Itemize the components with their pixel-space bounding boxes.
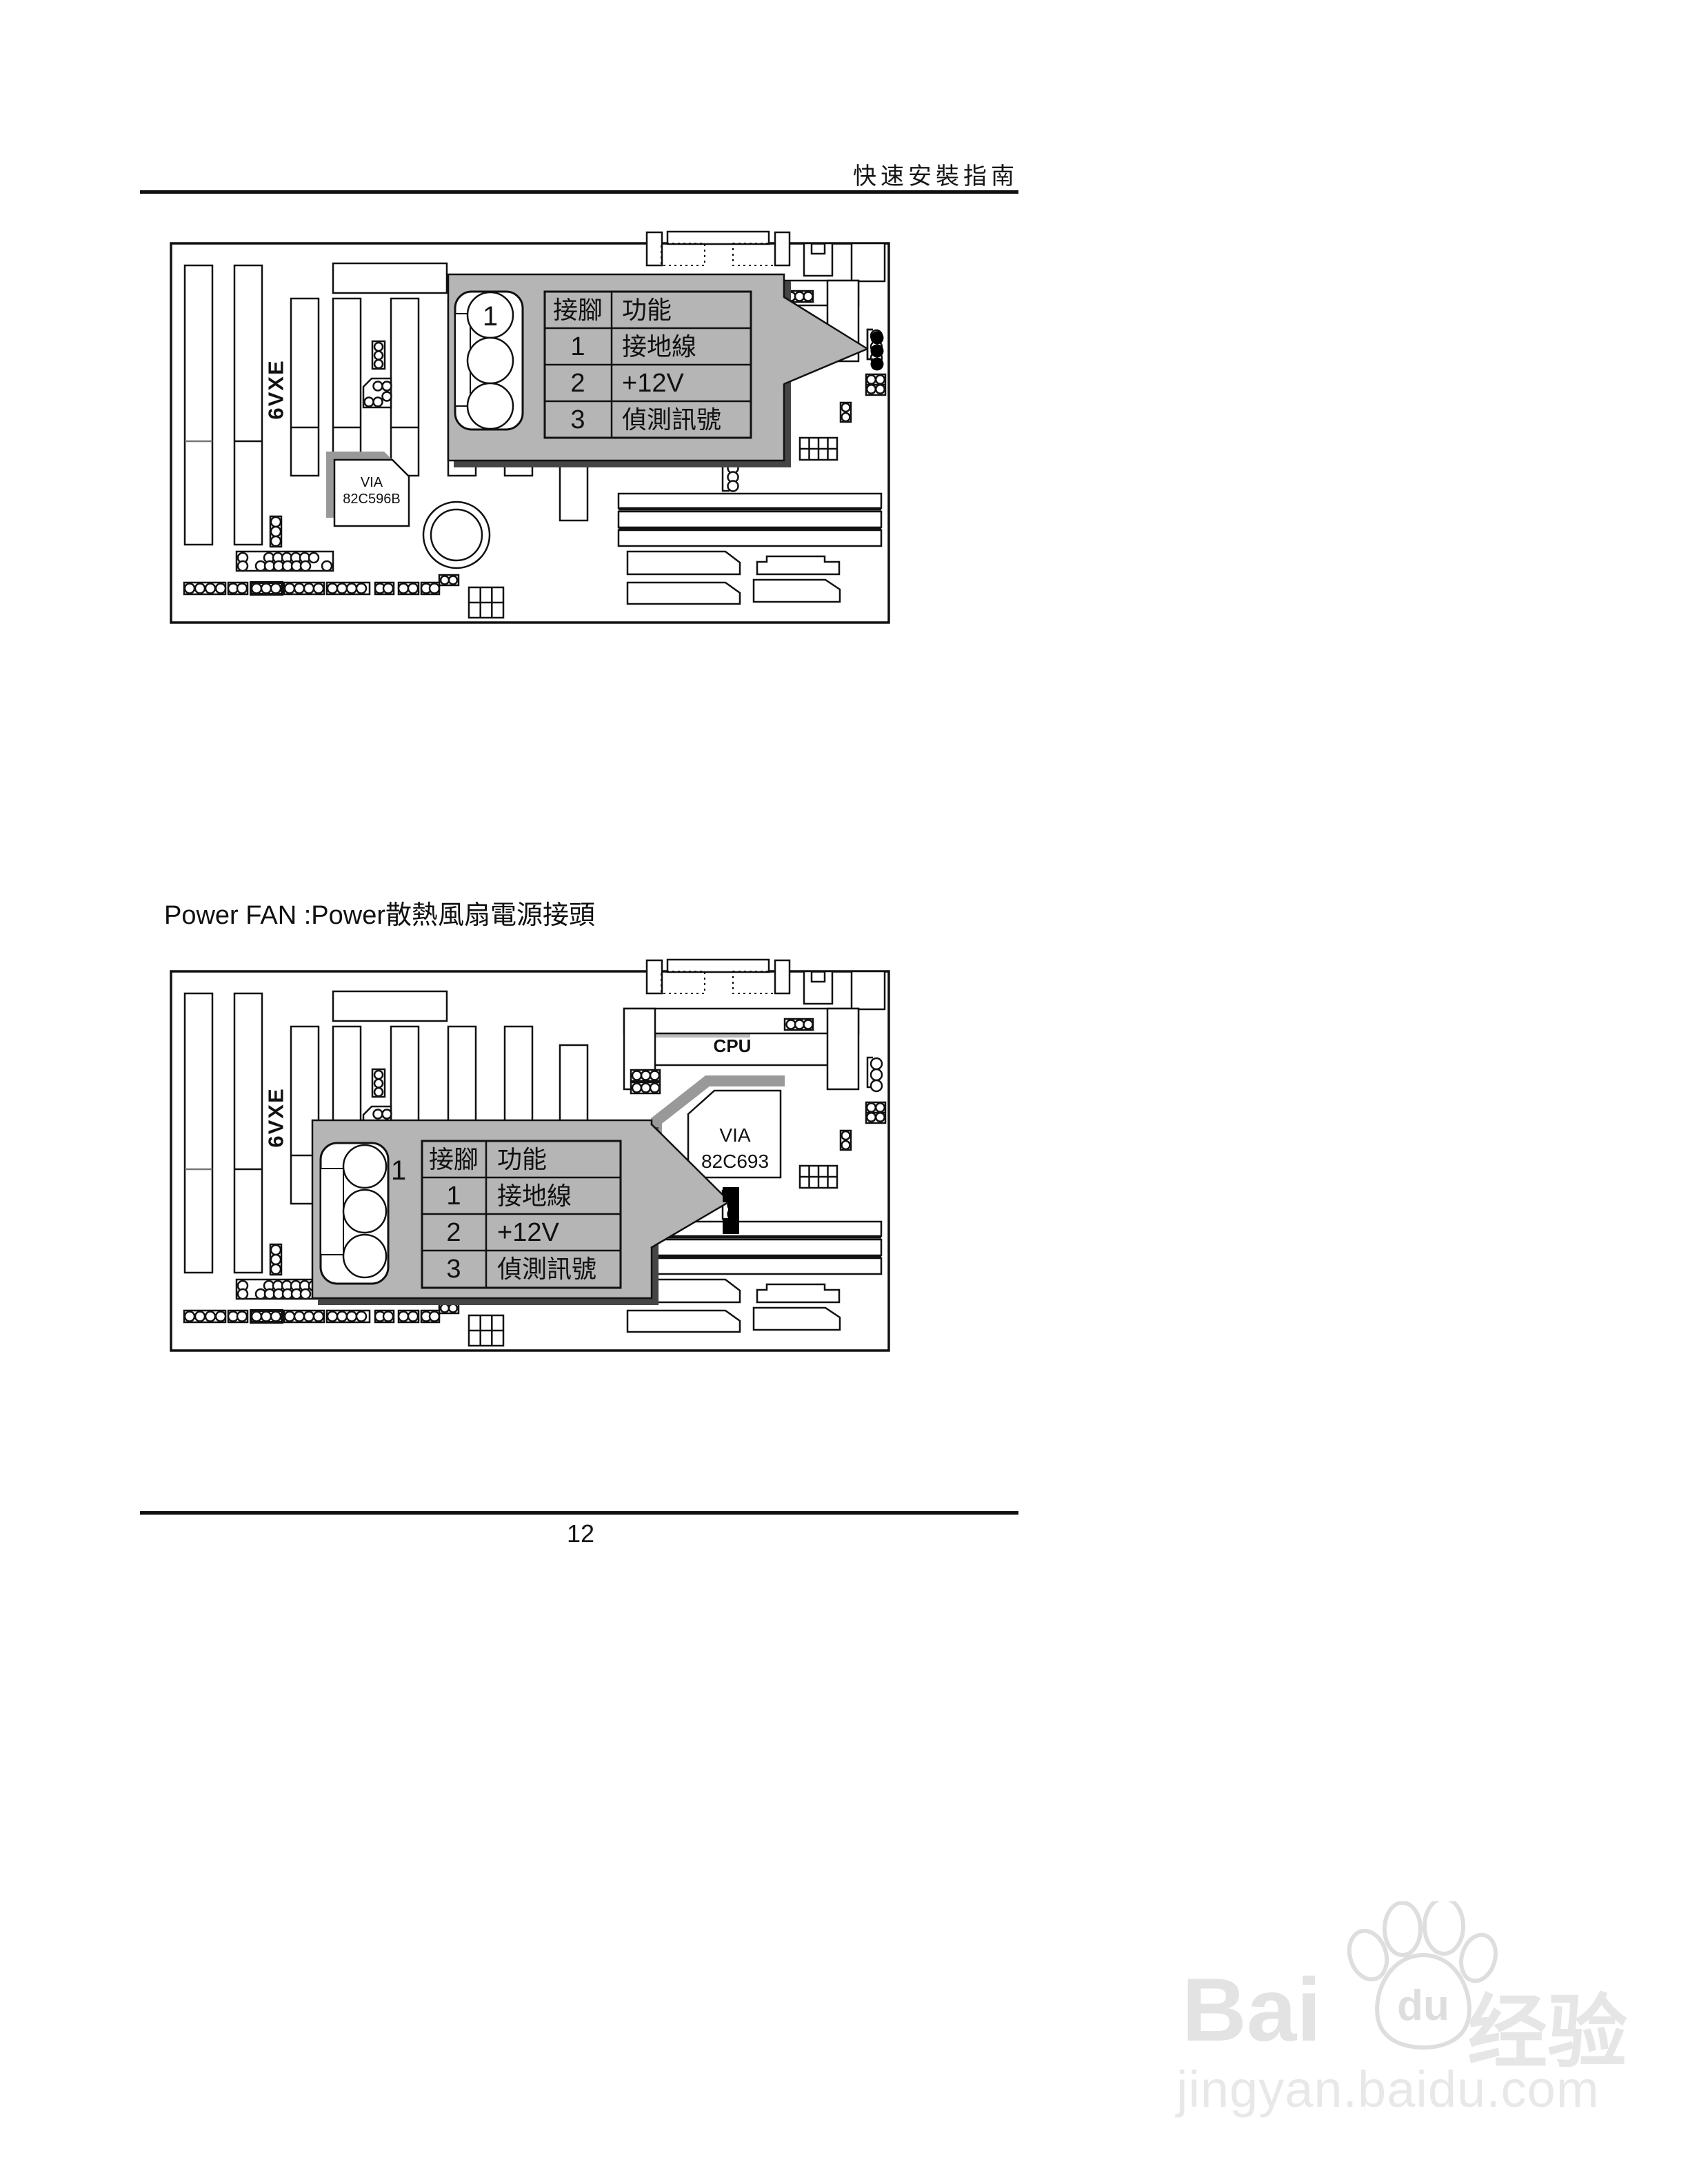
table1-r2-func: +12V xyxy=(622,369,684,398)
watermark-du-text: du xyxy=(1397,1982,1449,2030)
table1-r3-pin: 3 xyxy=(570,405,585,434)
table2-r2-func: +12V xyxy=(497,1218,559,1247)
table1-r1-pin: 1 xyxy=(570,332,585,361)
table2-header-func: 功能 xyxy=(497,1146,547,1173)
table1-r2-pin: 2 xyxy=(570,369,585,398)
table2-r3-pin: 3 xyxy=(446,1255,461,1284)
pin1-marker-2: 1 xyxy=(391,1155,406,1186)
table1-r3-func: 偵測訊號 xyxy=(622,406,721,434)
table2-header-pin: 接腳 xyxy=(429,1146,479,1173)
fan-connector-drawing-1: 1 xyxy=(455,292,523,429)
table2-r1-func: 接地線 xyxy=(497,1182,572,1210)
manual-page: 快速安裝指南 Power FAN :Power散熱風扇電源接頭 xyxy=(0,0,1688,2184)
motherboard-diagrams: 6VXE CPU xyxy=(0,0,1688,2184)
table1-r1-func: 接地線 xyxy=(622,333,696,361)
table2-r2-pin: 2 xyxy=(446,1218,461,1247)
table1-header-pin: 接腳 xyxy=(553,296,603,324)
watermark-url: jingyan.baidu.com xyxy=(1176,2060,1599,2119)
table1-header-func: 功能 xyxy=(622,296,672,324)
table2-r1-pin: 1 xyxy=(446,1182,461,1211)
watermark-bai-text: Bai xyxy=(1182,1958,1321,2061)
table2-r3-func: 偵測訊號 xyxy=(497,1255,596,1283)
baidu-watermark: Bai du 经验 jingyan.baidu.com xyxy=(1172,1910,1655,2137)
footer-rule xyxy=(140,1511,1018,1515)
page-number: 12 xyxy=(552,1519,610,1548)
pin1-marker-1: 1 xyxy=(483,301,498,332)
